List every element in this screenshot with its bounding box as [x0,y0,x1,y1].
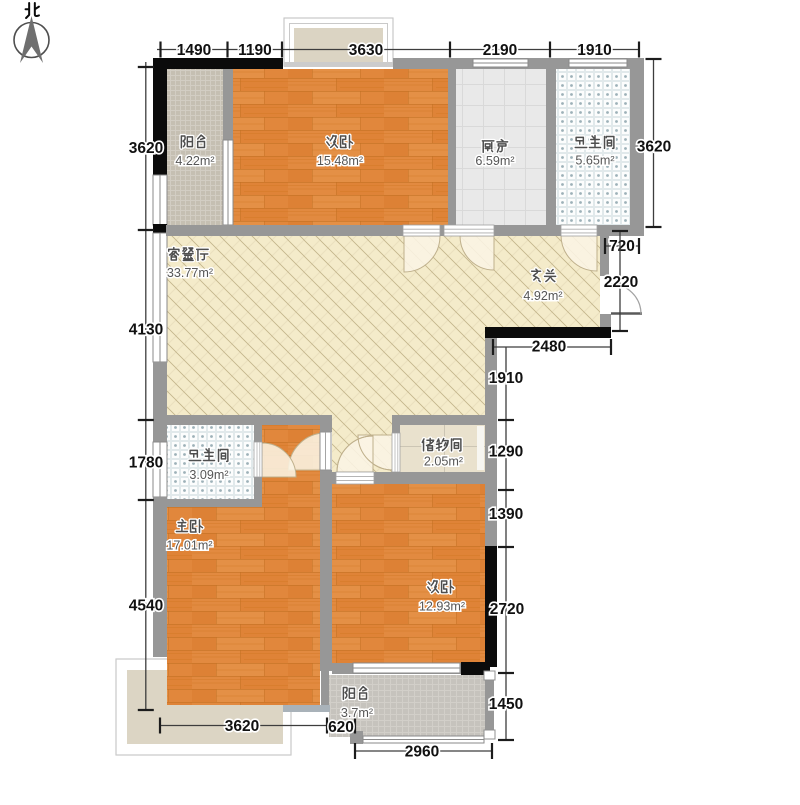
svg-text:4130: 4130 [129,321,163,338]
svg-text:2220: 2220 [604,274,638,291]
svg-text:1910: 1910 [577,42,611,59]
svg-text:3620: 3620 [225,718,259,735]
svg-text:3620: 3620 [637,138,671,155]
svg-text:3.09m²: 3.09m² [189,468,228,482]
svg-text:2480: 2480 [532,338,566,355]
svg-text:33.77m²: 33.77m² [167,266,213,280]
svg-text:1780: 1780 [129,454,163,471]
svg-text:720: 720 [609,238,635,255]
svg-text:1190: 1190 [238,42,272,59]
svg-text:620: 620 [328,719,354,736]
svg-text:4.22m²: 4.22m² [175,154,214,168]
svg-text:2960: 2960 [405,743,439,760]
svg-text:3.7m²: 3.7m² [341,706,373,720]
svg-text:1490: 1490 [177,42,211,59]
svg-text:1450: 1450 [489,696,523,713]
svg-text:1390: 1390 [489,506,523,523]
svg-text:3630: 3630 [349,42,383,59]
svg-text:4540: 4540 [129,597,163,614]
svg-text:6.59m²: 6.59m² [475,154,514,168]
svg-text:2.05m²: 2.05m² [424,455,463,469]
svg-text:2190: 2190 [483,42,517,59]
svg-text:1290: 1290 [489,443,523,460]
svg-text:4.92m²: 4.92m² [523,289,562,303]
svg-text:1910: 1910 [489,370,523,387]
svg-text:5.65m²: 5.65m² [575,154,614,168]
svg-text:17.01m²: 17.01m² [166,539,212,553]
svg-text:2720: 2720 [490,601,524,618]
svg-text:15.48m²: 15.48m² [317,154,363,168]
svg-text:3620: 3620 [129,140,163,157]
svg-text:12.93m²: 12.93m² [419,600,465,614]
